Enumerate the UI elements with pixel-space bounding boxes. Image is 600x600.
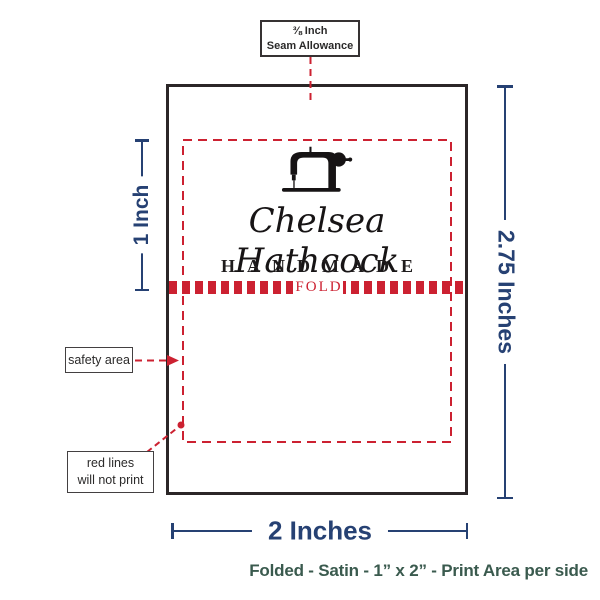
red-lines-note: red lines will not print [67, 451, 154, 493]
dim-275-label: 2.75 Inches [491, 220, 522, 364]
dim-1inch-label: 1 Inch [128, 177, 156, 254]
dim-275-cap-bottom [497, 497, 513, 500]
label-template-diagram: FOLD Chelsea Hathcock HANDMADE ⅜ Inch Se… [0, 0, 600, 600]
seam-allowance-line1: ⅜ Inch [293, 24, 328, 39]
sewing-machine-icon [281, 144, 353, 194]
safety-area-note: safety area [65, 347, 133, 373]
red-lines-line2: will not print [78, 472, 144, 489]
dim-2inch-cap-right [466, 523, 469, 539]
dim-2inch-cap-left [171, 523, 174, 539]
product-caption: Folded - Satin - 1” x 2” - Print Area pe… [249, 561, 588, 581]
dim-1inch-cap-bottom [135, 289, 149, 292]
seam-allowance-note: ⅜ Inch Seam Allowance [260, 20, 360, 57]
red-lines-line1: red lines [87, 455, 134, 472]
seam-allowance-line2: Seam Allowance [267, 39, 353, 54]
brand-subtitle: HANDMADE [166, 256, 468, 277]
safety-area-label: safety area [68, 352, 130, 369]
dim-2inch-label: 2 Inches [252, 512, 388, 551]
dim-275-cap-top [497, 85, 513, 88]
dim-1inch-cap-top [135, 139, 149, 142]
